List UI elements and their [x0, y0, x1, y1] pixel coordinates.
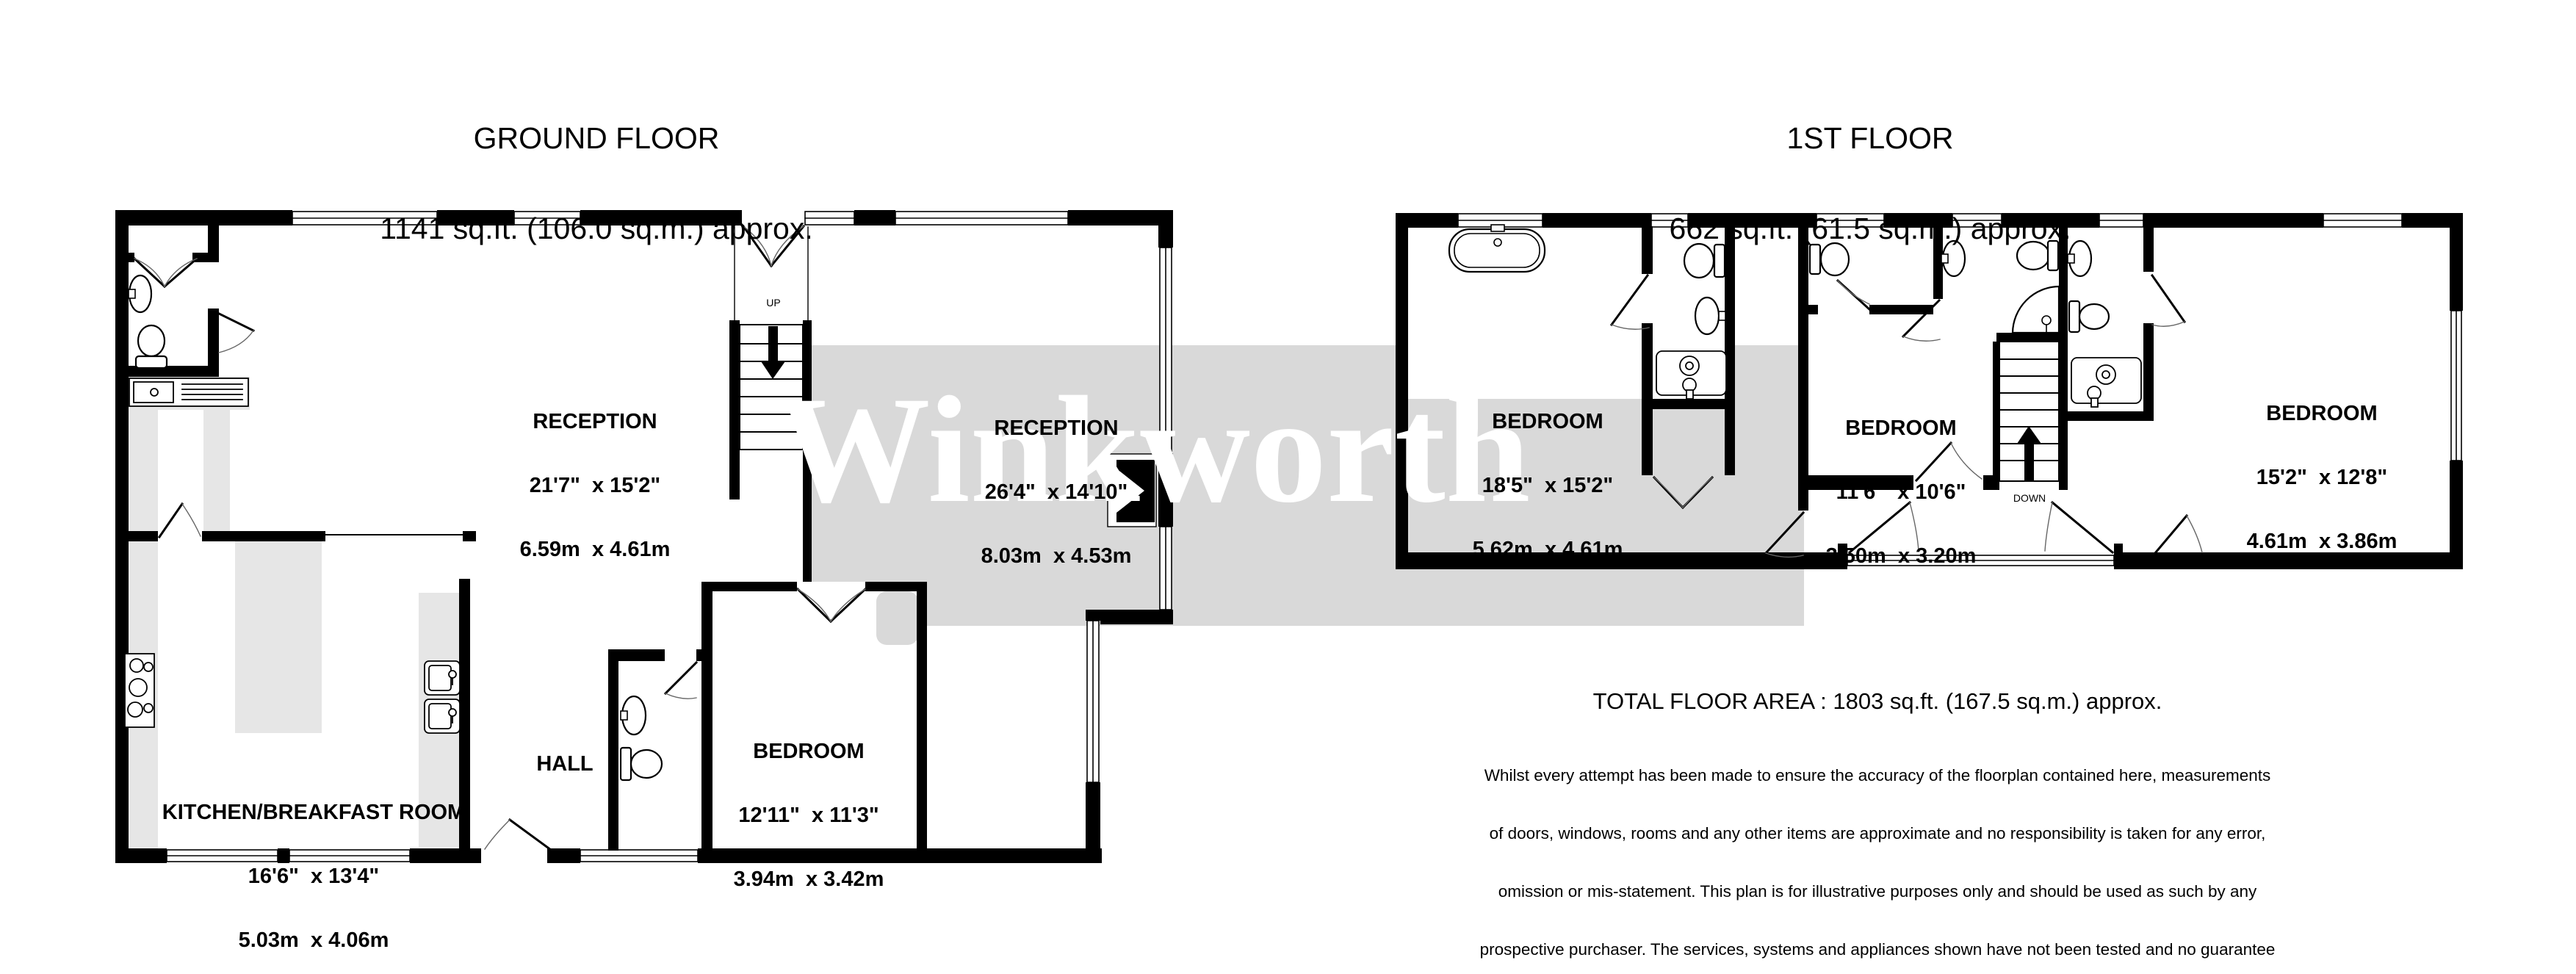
- window: [2099, 214, 2143, 227]
- room-label-hall: HALL: [536, 711, 593, 796]
- kitchen-sink: [425, 661, 460, 695]
- floor-title: 1ST FLOOR: [1670, 123, 2071, 154]
- window: [2451, 311, 2461, 461]
- hob: [125, 654, 154, 727]
- floorplan-page: Winkworth GROUND FLOOR 1141 sq.ft. (106.…: [0, 0, 2576, 974]
- disclaimer: Whilst every attempt has been made to en…: [1480, 727, 2276, 974]
- window: [2323, 214, 2402, 227]
- room-label-bedroom3: BEDROOM 15'2" x 12'8" 4.61m x 3.86m: [2247, 361, 2398, 574]
- room-label-kitchen: KITCHEN/BREAKFAST ROOM 16'6" x 13'4" 5.0…: [162, 760, 465, 973]
- room-label-reception1: RECEPTION 21'7" x 15'2" 6.59m x 4.61m: [520, 369, 671, 582]
- vanity-sink: [1656, 351, 1726, 399]
- window: [895, 212, 1068, 225]
- room-label-ground-bedroom: BEDROOM 12'11" x 11'3" 3.94m x 3.42m: [734, 699, 884, 912]
- utility-sink: [129, 378, 248, 406]
- floor-title: GROUND FLOOR: [380, 123, 813, 154]
- room-label-bedroom2: BEDROOM 11'6" x 10'6" 3.50m x 3.20m: [1826, 375, 1977, 588]
- corner-shower-tray: [876, 591, 918, 645]
- kitchen-island: [235, 541, 322, 733]
- kitchen-sink: [425, 699, 460, 733]
- staircase-down: [1999, 342, 2059, 481]
- floor-area: 662 sq.ft. (61.5 sq.m.) approx.: [1670, 214, 2071, 244]
- vanity-sink: [2071, 358, 2141, 407]
- window: [1087, 621, 1099, 782]
- bathroom-sink: [2068, 241, 2091, 276]
- stairs-down-label: DOWN: [2013, 493, 2046, 503]
- bathroom-toilet: [621, 748, 662, 780]
- total-floor-area: TOTAL FLOOR AREA : 1803 sq.ft. (167.5 sq…: [1593, 690, 2162, 713]
- room-label-bedroom1: BEDROOM 18'5" x 15'2" 5.62m x 4.61m: [1473, 369, 1623, 582]
- stairs-up-label: UP: [766, 297, 780, 308]
- window: [580, 850, 698, 862]
- watermark-text: Winkworth: [778, 365, 1531, 534]
- wc-sink: [129, 275, 151, 312]
- room-label-reception2: RECEPTION 26'4" x 14'10" 8.03m x 4.53m: [981, 375, 1132, 588]
- ground-floor-title: GROUND FLOOR 1141 sq.ft. (106.0 sq.m.) a…: [380, 63, 813, 274]
- bathroom-toilet: [2069, 301, 2109, 332]
- window: [1160, 527, 1172, 610]
- wc-toilet: [136, 325, 167, 368]
- first-floor-title: 1ST FLOOR 662 sq.ft. (61.5 sq.m.) approx…: [1670, 63, 2071, 274]
- floor-area: 1141 sq.ft. (106.0 sq.m.) approx.: [380, 214, 813, 244]
- bathtub: [1449, 225, 1545, 272]
- corner-shower: [2013, 286, 2059, 333]
